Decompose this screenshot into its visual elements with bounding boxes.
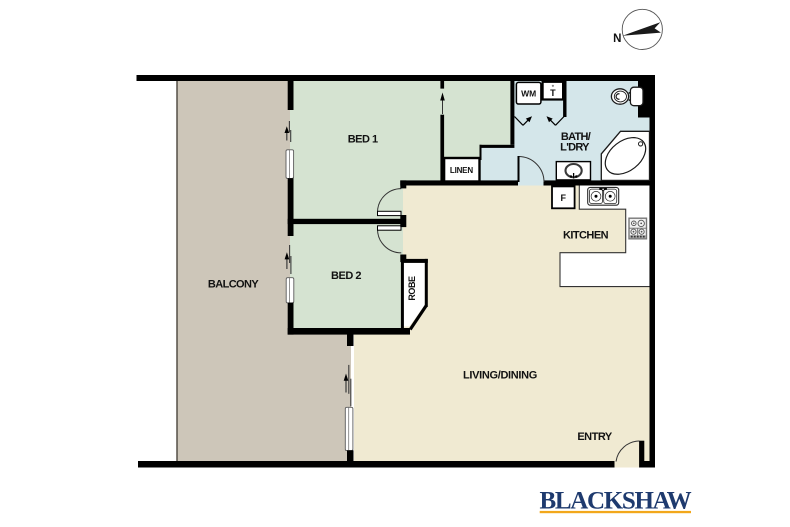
svg-text:ROBE: ROBE — [407, 276, 417, 301]
svg-text:KITCHEN: KITCHEN — [563, 229, 609, 241]
svg-text:F: F — [561, 193, 567, 203]
svg-text:LIVING/DINING: LIVING/DINING — [463, 369, 537, 381]
svg-text:LINEN: LINEN — [450, 166, 473, 175]
svg-text:BED 1: BED 1 — [348, 133, 378, 145]
svg-text:ENTRY: ENTRY — [577, 431, 613, 443]
svg-text:N: N — [613, 33, 621, 45]
svg-text:BLACKSHAW: BLACKSHAW — [540, 488, 692, 515]
svg-text:L'DRY: L'DRY — [560, 141, 590, 153]
svg-text:BALCONY: BALCONY — [208, 278, 259, 290]
svg-text:T: T — [550, 88, 556, 98]
svg-text:BED 2: BED 2 — [331, 270, 361, 282]
svg-text:WM: WM — [521, 89, 536, 99]
